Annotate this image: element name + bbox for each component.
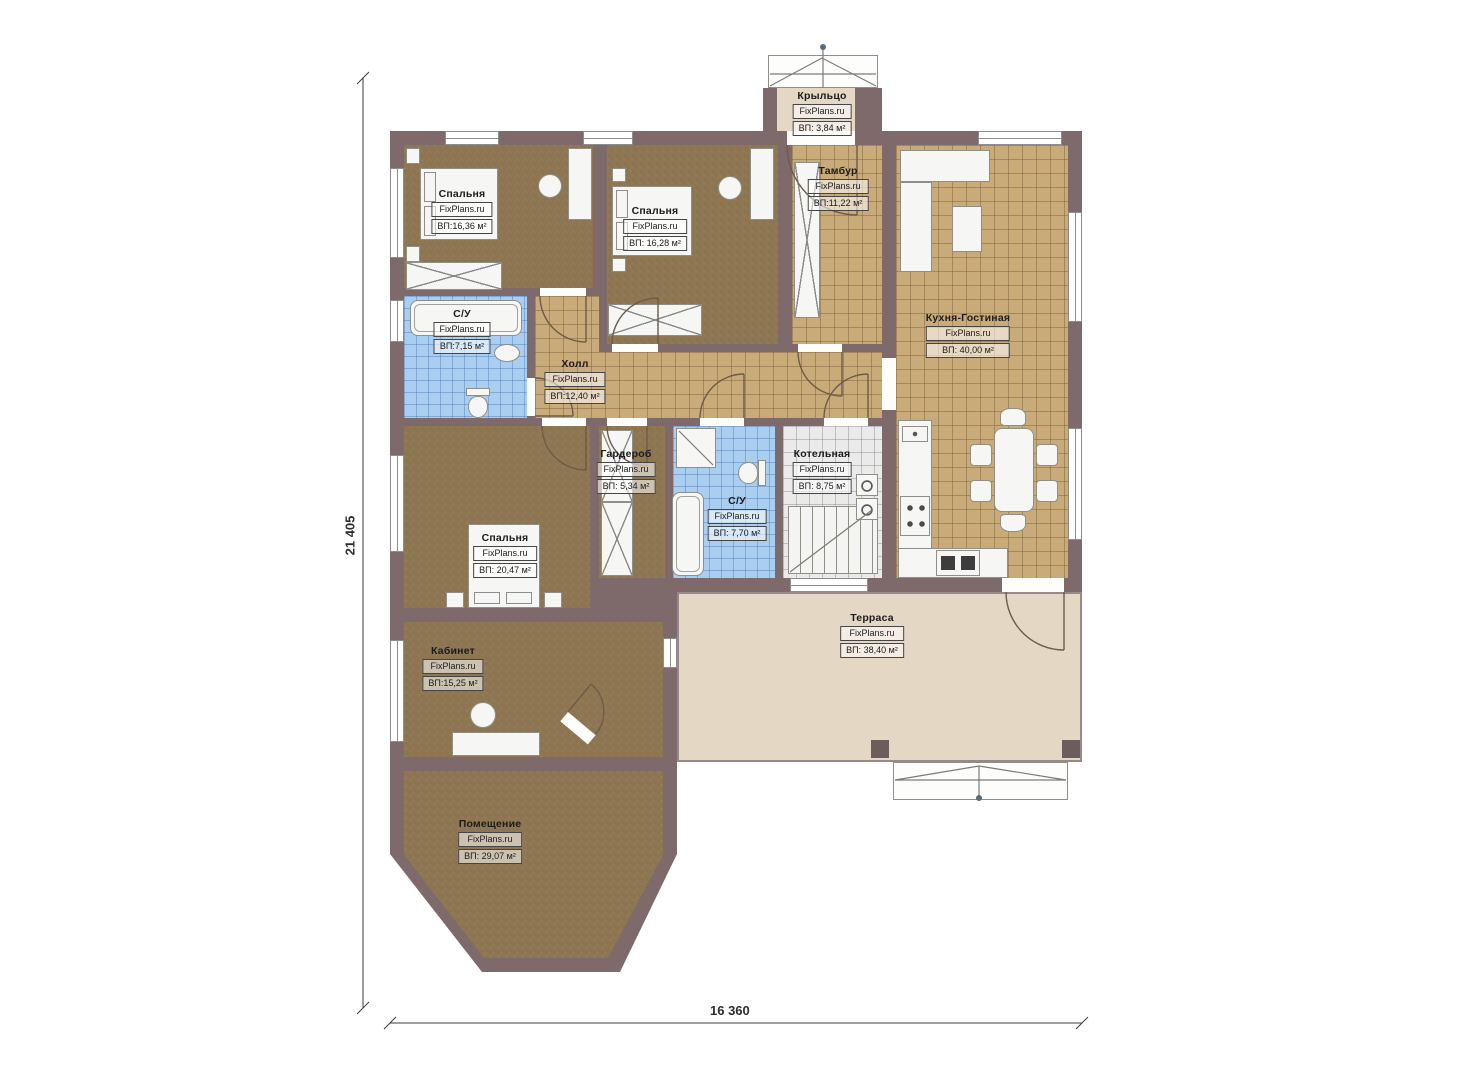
- desk-symbol: [750, 148, 774, 220]
- room-watermark: FixPlans.ru: [544, 372, 605, 387]
- dimension-line-horizontal: [384, 1017, 1088, 1029]
- terrace-post: [1062, 740, 1080, 758]
- room-label-kitchen-living: Кухня-Гостиная FixPlans.ru ВП: 40,00 м²: [926, 312, 1010, 358]
- sink-symbol: [494, 344, 520, 362]
- room-area: ВП: 7,70 м²: [708, 526, 767, 541]
- dining-table-symbol: [994, 428, 1034, 512]
- bathtub-symbol: [672, 492, 704, 576]
- porch-steps: [768, 55, 878, 88]
- dimension-vertical: 21 405: [342, 516, 357, 556]
- room-watermark: FixPlans.ru: [926, 326, 1010, 341]
- room-label-hall: Холл FixPlans.ru ВП:12,40 м²: [544, 358, 605, 404]
- toilet-tank-symbol: [466, 388, 490, 396]
- room-label-terrace: Терраса FixPlans.ru ВП: 38,40 м²: [840, 612, 904, 658]
- pillow-symbol: [474, 592, 500, 604]
- room-label-tambour: Тамбур FixPlans.ru ВП:11,22 м²: [808, 165, 869, 211]
- door-opening-bedroom-3: [542, 418, 586, 426]
- room-name: Спальня: [473, 532, 537, 544]
- window: [445, 131, 499, 145]
- room-label-porch: Крыльцо FixPlans.ru ВП: 3,84 м²: [793, 90, 852, 136]
- nightstand-symbol: [544, 592, 562, 608]
- room-label-wardrobe: Гардероб FixPlans.ru ВП: 5,34 м²: [597, 448, 656, 494]
- chair-symbol: [1000, 408, 1026, 426]
- pillow-symbol: [506, 592, 532, 604]
- room-name: Спальня: [623, 205, 687, 217]
- sofa-symbol: [900, 150, 990, 182]
- dimension-horizontal: 16 360: [710, 1003, 750, 1018]
- door-opening-bedroom-2: [612, 344, 658, 352]
- window: [390, 300, 404, 342]
- chair-symbol: [1036, 480, 1058, 502]
- room-watermark: FixPlans.ru: [840, 626, 904, 641]
- room-name: Терраса: [840, 612, 904, 624]
- room-area: ВП: 5,34 м²: [597, 479, 656, 494]
- nightstand-symbol: [612, 168, 626, 182]
- room-watermark: FixPlans.ru: [808, 179, 869, 194]
- chair-symbol: [538, 174, 562, 198]
- terrace-steps: [893, 762, 1068, 800]
- room-name: Тамбур: [808, 165, 869, 177]
- room-name: Спальня: [431, 188, 492, 200]
- room-area: ВП: 40,00 м²: [926, 343, 1010, 358]
- room-area: ВП: 16,28 м²: [623, 236, 687, 251]
- door-opening-tambour: [798, 344, 842, 352]
- desk-symbol: [568, 148, 592, 220]
- door-opening-bathroom-1: [527, 378, 535, 416]
- sink-symbol: [902, 426, 928, 442]
- terrace-post: [871, 740, 889, 758]
- stove-symbol: [900, 496, 930, 536]
- room-area: ВП: 38,40 м²: [840, 643, 904, 658]
- room-area: ВП: 8,75 м²: [793, 479, 852, 494]
- room-area: ВП: 29,07 м²: [458, 849, 522, 864]
- room-name: Гардероб: [597, 448, 656, 460]
- room-name: Кабинет: [422, 645, 483, 657]
- room-label-bedroom-3: Спальня FixPlans.ru ВП: 20,47 м²: [473, 532, 537, 578]
- room-label-bedroom-1: Спальня FixPlans.ru ВП:16,36 м²: [431, 188, 492, 234]
- room-area: ВП:7,15 м²: [433, 339, 490, 354]
- kitchen-appliance-symbol: [936, 550, 980, 576]
- nightstand-symbol: [612, 258, 626, 272]
- room-name: Холл: [544, 358, 605, 370]
- room-area: ВП:12,40 м²: [544, 389, 605, 404]
- toilet-tank-symbol: [758, 460, 766, 486]
- shower-symbol: [676, 428, 716, 468]
- room-label-boiler: Котельная FixPlans.ru ВП: 8,75 м²: [793, 448, 852, 494]
- window: [790, 578, 868, 592]
- porch-steps-node: [820, 44, 826, 50]
- room-watermark: FixPlans.ru: [793, 462, 852, 477]
- desk-symbol: [452, 732, 540, 756]
- door-opening-hall-kitchen: [882, 358, 896, 410]
- toilet-symbol: [468, 396, 488, 418]
- room-watermark: FixPlans.ru: [433, 322, 490, 337]
- sofa-symbol: [900, 182, 932, 272]
- room-name: Кухня-Гостиная: [926, 312, 1010, 324]
- chair-symbol: [718, 176, 742, 200]
- room-area: ВП: 3,84 м²: [793, 121, 852, 136]
- nightstand-symbol: [406, 148, 420, 164]
- room-watermark: FixPlans.ru: [793, 104, 852, 119]
- window: [390, 640, 404, 742]
- room-label-bathroom-2: С/У FixPlans.ru ВП: 7,70 м²: [708, 495, 767, 541]
- window: [978, 131, 1062, 145]
- dimension-line-vertical: [357, 72, 369, 1014]
- room-name: С/У: [433, 308, 490, 320]
- room-name: С/У: [708, 495, 767, 507]
- room-area: ВП:11,22 м²: [808, 196, 869, 211]
- room-watermark: FixPlans.ru: [708, 509, 767, 524]
- chair-symbol: [1036, 444, 1058, 466]
- room-watermark: FixPlans.ru: [458, 832, 522, 847]
- wall-porch-right: [855, 88, 882, 131]
- window: [390, 455, 404, 552]
- room-watermark: FixPlans.ru: [597, 462, 656, 477]
- nightstand-symbol: [446, 592, 464, 608]
- window: [390, 168, 404, 258]
- window: [663, 638, 677, 668]
- washer-symbol: [856, 474, 878, 496]
- room-label-bathroom-1: С/У FixPlans.ru ВП:7,15 м²: [433, 308, 490, 354]
- room-area: ВП:16,36 м²: [431, 219, 492, 234]
- wardrobe-symbol: [601, 502, 633, 576]
- chair-symbol: [470, 702, 496, 728]
- window: [583, 131, 633, 145]
- door-opening-wardrobe: [607, 418, 647, 426]
- room-watermark: FixPlans.ru: [623, 219, 687, 234]
- coffee-table-symbol: [952, 206, 982, 252]
- chair-symbol: [970, 444, 992, 466]
- room-watermark: FixPlans.ru: [422, 659, 483, 674]
- door-opening-bedroom-1: [540, 288, 586, 296]
- window: [1068, 428, 1082, 540]
- wardrobe-symbol: [406, 262, 502, 290]
- room-area: ВП: 20,47 м²: [473, 563, 537, 578]
- window: [1068, 212, 1082, 322]
- room-label-office: Кабинет FixPlans.ru ВП:15,25 м²: [422, 645, 483, 691]
- chair-symbol: [970, 480, 992, 502]
- room-area: ВП:15,25 м²: [422, 676, 483, 691]
- room-name: Крыльцо: [793, 90, 852, 102]
- chair-symbol: [1000, 514, 1026, 532]
- room-name: Котельная: [793, 448, 852, 460]
- wardrobe-symbol: [608, 304, 702, 336]
- door-opening-boiler: [824, 418, 868, 426]
- washer-symbol: [856, 498, 878, 520]
- room-label-utility: Помещение FixPlans.ru ВП: 29,07 м²: [458, 818, 522, 864]
- door-opening-bathroom-2: [700, 418, 744, 426]
- nightstand-symbol: [406, 246, 420, 262]
- floor-plan: Крыльцо FixPlans.ru ВП: 3,84 м² Спальня …: [0, 0, 1474, 1080]
- room-watermark: FixPlans.ru: [431, 202, 492, 217]
- room-name: Помещение: [458, 818, 522, 830]
- door-opening-kitchen-terrace: [1002, 578, 1064, 592]
- toilet-symbol: [738, 462, 758, 484]
- room-watermark: FixPlans.ru: [473, 546, 537, 561]
- room-label-bedroom-2: Спальня FixPlans.ru ВП: 16,28 м²: [623, 205, 687, 251]
